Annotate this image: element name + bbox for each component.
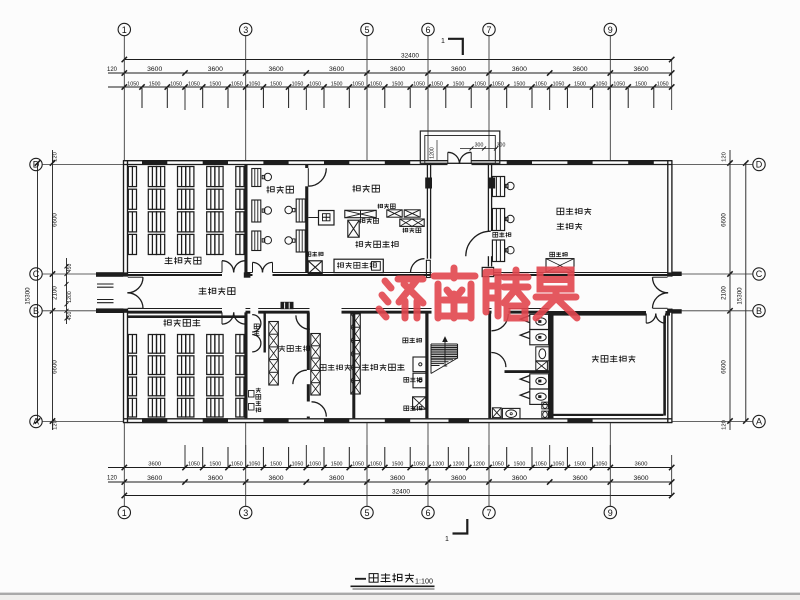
svg-text:1050: 1050 (170, 82, 182, 88)
svg-text:1500: 1500 (514, 82, 526, 88)
svg-text:5: 5 (364, 25, 369, 35)
svg-text:3600: 3600 (390, 475, 405, 482)
svg-text:15300: 15300 (25, 287, 32, 305)
svg-text:1050: 1050 (596, 82, 608, 88)
svg-text:1500: 1500 (574, 82, 586, 88)
svg-text:120: 120 (722, 152, 728, 162)
svg-text:1050: 1050 (492, 461, 504, 467)
svg-text:3600: 3600 (147, 66, 162, 73)
svg-text:1050: 1050 (188, 461, 200, 467)
svg-text:1050: 1050 (292, 82, 304, 88)
svg-text:1050: 1050 (613, 82, 625, 88)
svg-text:1: 1 (122, 25, 127, 35)
svg-text:1050: 1050 (492, 82, 504, 88)
svg-text:1050: 1050 (535, 461, 547, 467)
svg-text:1500: 1500 (392, 82, 404, 88)
svg-text:1050: 1050 (352, 82, 364, 88)
svg-text:1500: 1500 (514, 461, 526, 467)
svg-text:D: D (33, 160, 40, 170)
svg-text:1050: 1050 (249, 461, 261, 467)
svg-text:1500: 1500 (453, 82, 465, 88)
svg-text:1050: 1050 (309, 82, 321, 88)
svg-text:C: C (33, 269, 40, 279)
svg-text:1: 1 (445, 536, 449, 543)
svg-text:1050: 1050 (657, 82, 669, 88)
svg-text:3600: 3600 (635, 461, 648, 467)
svg-text:A: A (756, 417, 762, 427)
svg-text:1050: 1050 (413, 461, 425, 467)
svg-text:3600: 3600 (147, 475, 162, 482)
svg-text:1200: 1200 (473, 461, 485, 467)
svg-text:9: 9 (608, 25, 613, 35)
svg-text:1500: 1500 (331, 82, 343, 88)
svg-text:5: 5 (364, 508, 369, 518)
svg-text:1050: 1050 (292, 461, 304, 467)
svg-text:450: 450 (67, 312, 73, 321)
svg-text:1050: 1050 (127, 82, 139, 88)
svg-text:C: C (756, 269, 763, 279)
svg-text:3: 3 (243, 25, 248, 35)
svg-text:3600: 3600 (451, 475, 466, 482)
svg-text:2100: 2100 (721, 286, 728, 300)
svg-text:15300: 15300 (737, 287, 744, 305)
svg-text:300: 300 (497, 143, 506, 149)
svg-text:1500: 1500 (635, 82, 647, 88)
svg-text:1050: 1050 (535, 82, 547, 88)
svg-text:3600: 3600 (572, 475, 587, 482)
svg-text:32400: 32400 (401, 53, 419, 60)
svg-text:3600: 3600 (208, 66, 223, 73)
svg-text:1050: 1050 (188, 82, 200, 88)
svg-text:1050: 1050 (596, 461, 608, 467)
svg-text:120: 120 (107, 476, 118, 482)
svg-text:1050: 1050 (370, 82, 382, 88)
svg-text:3600: 3600 (148, 461, 161, 467)
svg-text:3600: 3600 (512, 475, 527, 482)
svg-text:1500: 1500 (209, 461, 221, 467)
svg-text:1500: 1500 (574, 461, 586, 467)
svg-text:1500: 1500 (270, 82, 282, 88)
svg-text:6600: 6600 (52, 213, 59, 227)
svg-text:1200: 1200 (67, 291, 73, 303)
svg-text:6600: 6600 (721, 213, 728, 227)
svg-text:6600: 6600 (721, 360, 728, 374)
svg-text:3: 3 (243, 508, 248, 518)
svg-text:3600: 3600 (572, 66, 587, 73)
svg-text:1050: 1050 (231, 82, 243, 88)
svg-text:7: 7 (486, 508, 491, 518)
svg-text:300: 300 (475, 143, 484, 149)
svg-text:B: B (756, 306, 762, 316)
svg-text:6: 6 (425, 508, 430, 518)
svg-text:120: 120 (53, 152, 59, 162)
svg-text:3600: 3600 (329, 66, 344, 73)
svg-text:9: 9 (608, 508, 613, 518)
svg-text:1050: 1050 (474, 82, 486, 88)
svg-text:1500: 1500 (331, 461, 343, 467)
svg-text:D: D (756, 160, 763, 170)
svg-text:3600: 3600 (329, 475, 344, 482)
svg-text:1050: 1050 (370, 461, 382, 467)
svg-text:1050: 1050 (553, 82, 565, 88)
svg-text:3600: 3600 (268, 66, 283, 73)
svg-text:1050: 1050 (309, 461, 321, 467)
svg-text:3600: 3600 (451, 66, 466, 73)
svg-text:1050: 1050 (352, 461, 364, 467)
svg-text:1500: 1500 (149, 82, 161, 88)
svg-text:120: 120 (107, 67, 118, 73)
svg-text:450: 450 (67, 264, 73, 273)
svg-text:A: A (33, 417, 39, 427)
svg-text:B: B (33, 306, 39, 316)
svg-text:1500: 1500 (270, 461, 282, 467)
svg-text:1200: 1200 (453, 461, 465, 467)
svg-text:3600: 3600 (633, 66, 648, 73)
svg-text:1: 1 (122, 508, 127, 518)
svg-text:32400: 32400 (392, 489, 410, 496)
svg-text:1: 1 (441, 38, 445, 45)
svg-text:3600: 3600 (512, 66, 527, 73)
svg-text:3600: 3600 (268, 475, 283, 482)
svg-text:1500: 1500 (209, 82, 221, 88)
svg-text:1050: 1050 (431, 82, 443, 88)
svg-text:1:100: 1:100 (415, 577, 433, 586)
svg-text:7: 7 (486, 25, 491, 35)
svg-text:1050: 1050 (553, 461, 565, 467)
svg-text:1200: 1200 (432, 461, 444, 467)
svg-text:1500: 1500 (392, 461, 404, 467)
svg-text:1050: 1050 (231, 461, 243, 467)
svg-text:3600: 3600 (390, 66, 405, 73)
svg-text:6: 6 (425, 25, 430, 35)
svg-text:1200: 1200 (429, 147, 435, 159)
svg-text:6600: 6600 (52, 360, 59, 374)
svg-text:1050: 1050 (249, 82, 261, 88)
svg-text:3600: 3600 (633, 475, 648, 482)
svg-text:3600: 3600 (208, 475, 223, 482)
svg-text:1050: 1050 (413, 82, 425, 88)
svg-text:2100: 2100 (52, 286, 59, 300)
